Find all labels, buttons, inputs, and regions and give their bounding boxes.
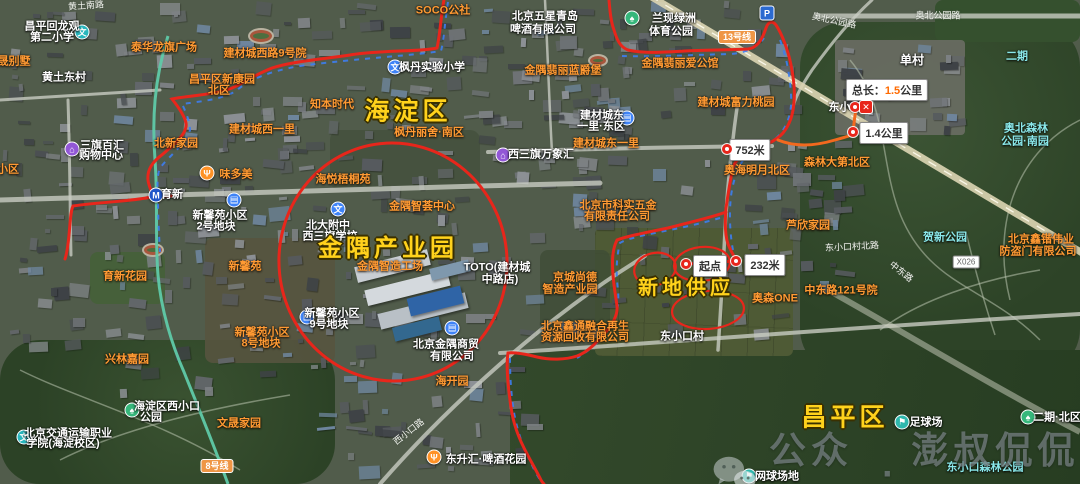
poi-label[interactable]: 金隅智荟中心 [389, 202, 455, 213]
road-label: 中东路 [888, 260, 915, 284]
distance-box: 1.4公里 [859, 122, 908, 144]
building-icon[interactable]: ▤ [227, 193, 242, 208]
poi-label[interactable]: 第二小学 [30, 33, 74, 44]
poi-label[interactable]: 建材城西路9号院 [223, 49, 306, 60]
poi-label[interactable]: 奥森ONE [752, 294, 798, 305]
district-title: 新地供应 [638, 278, 734, 298]
poi-label[interactable]: 公园 [140, 413, 162, 424]
poi-label[interactable]: 知本时代 [310, 100, 354, 111]
poi-label[interactable]: SOCO公社 [416, 6, 470, 17]
measure-text: X026 [957, 258, 976, 267]
park-icon[interactable]: ♠ [625, 11, 640, 26]
school-icon[interactable]: 文 [331, 202, 346, 217]
poi-label[interactable]: 一里·东区 [577, 122, 625, 133]
poi-label[interactable]: 奥海明月北区 [724, 166, 790, 177]
poi-label[interactable]: 建材城西一里 [229, 125, 295, 136]
poi-label[interactable]: 智造产业园 [543, 285, 598, 296]
poi-label[interactable]: 8号地块 [241, 339, 280, 350]
poi-label[interactable]: 味多美 [220, 170, 253, 181]
poi-label[interactable]: 防盗门有限公司 [1000, 247, 1077, 258]
poi-label[interactable]: 资源回收有限公司 [541, 333, 629, 344]
route-end-marker: ✕ [859, 100, 873, 114]
poi-label[interactable]: 建材城富力桃园 [698, 98, 775, 109]
labels-layer: 文文文文♠♠♠⌂⌂ΨΨM▤▤▤▤P⚑⚑晟别墅昌平回龙观第二小学黄土东村泰华龙旗广… [0, 0, 1080, 484]
poi-label[interactable]: 有限责任公司 [584, 212, 650, 223]
poi-label[interactable]: 小区 [0, 165, 19, 176]
satellite-map[interactable]: 文文文文♠♠♠⌂⌂ΨΨM▤▤▤▤P⚑⚑晟别墅昌平回龙观第二小学黄土东村泰华龙旗广… [0, 0, 1080, 484]
poi-label[interactable]: 金隅翡丽爱公馆 [642, 59, 719, 70]
poi-label[interactable]: 海开园 [436, 377, 469, 388]
poi-label[interactable]: 黄土东村 [42, 73, 86, 84]
road-label: 东小口村北路 [825, 241, 879, 253]
poi-label[interactable]: 北京金隅商贸 [413, 340, 479, 351]
sports-field-icon[interactable]: ⚑ [895, 415, 910, 430]
poi-label[interactable]: 奥北森林 [1004, 124, 1048, 135]
poi-label[interactable]: 兴林嘉园 [105, 355, 149, 366]
poi-label[interactable]: 海悦梧桐苑 [316, 175, 371, 186]
distance-box: 232米 [744, 254, 785, 276]
poi-label[interactable]: 中东路121号院 [804, 286, 877, 297]
poi-label[interactable]: 有限公司 [430, 352, 474, 363]
route-point-marker [848, 127, 858, 137]
poi-label[interactable]: 育新 [161, 190, 183, 201]
poi-label[interactable]: 文晟家园 [217, 419, 261, 430]
poi-label[interactable]: 贺新公园 [923, 233, 967, 244]
road-label: 奥北公园路 [915, 12, 960, 21]
poi-label[interactable]: 北新家园 [154, 139, 198, 150]
measure-text: 752米 [735, 145, 764, 157]
poi-label[interactable]: TOTO(建材城 [464, 263, 531, 274]
poi-label[interactable]: 二期·北区 [1033, 413, 1080, 424]
poi-label[interactable]: 泰华龙旗广场 [131, 43, 197, 54]
measure-text: 232米 [750, 260, 779, 272]
district-title: 金隅产业园 [318, 237, 458, 261]
district-title: 海淀区 [364, 100, 451, 125]
poi-label[interactable]: 足球场 [910, 418, 943, 429]
poi-label[interactable]: 金隅翡丽蓝爵堡 [525, 66, 602, 77]
metro-line-badge: 13号线 [718, 30, 756, 44]
poi-label[interactable]: 北区 [208, 86, 230, 97]
poi-label[interactable]: 9号地块 [309, 320, 348, 331]
poi-label[interactable]: 东小口村 [660, 332, 704, 343]
poi-label[interactable]: 建材城东一里 [573, 139, 639, 150]
poi-label[interactable]: 枫丹丽舍·南区 [394, 128, 464, 139]
road-label: 奥北公园路 [811, 12, 857, 30]
road-label: 黄土南路 [68, 0, 105, 11]
poi-label[interactable]: 枫丹实验小学 [399, 63, 465, 74]
poi-label[interactable]: 公园·南园 [1001, 137, 1049, 148]
poi-label[interactable]: 东升汇·啤酒花园 [446, 455, 527, 466]
poi-label[interactable]: 中路店) [482, 275, 519, 286]
poi-label[interactable]: 北京五星青岛 [512, 12, 578, 23]
poi-label[interactable]: 网球场地 [755, 472, 799, 483]
poi-label[interactable]: 森林大第北区 [804, 158, 870, 169]
poi-label[interactable]: 金隅智造工场 [357, 262, 423, 273]
metro-line-badge: 8号线 [200, 459, 233, 473]
poi-label[interactable]: 新馨苑 [229, 262, 262, 273]
parking-icon[interactable]: P [760, 6, 775, 21]
district-title: 昌平区 [801, 406, 888, 431]
poi-label[interactable]: 购物中心 [79, 151, 123, 162]
poi-label[interactable]: 晟别墅 [0, 57, 31, 68]
building-icon[interactable]: ▤ [445, 321, 460, 336]
poi-label[interactable]: 西三旗万象汇 [508, 150, 574, 161]
distance-box: 总长：1.5公里 [846, 79, 928, 101]
poi-label[interactable]: 北京鑫锴伟业 [1008, 235, 1074, 246]
route-point-marker [731, 256, 741, 266]
road-label: 西小口路 [392, 417, 426, 446]
poi-label[interactable]: 学院(海淀校区) [26, 439, 99, 450]
poi-label[interactable]: 育新花园 [103, 272, 147, 283]
measure-text: 1.4公里 [865, 128, 902, 140]
poi-label[interactable]: 兰现绿洲 [652, 14, 696, 25]
measure-text: 1.5 [885, 85, 900, 97]
poi-label[interactable]: 芦欣家园 [786, 221, 830, 232]
poi-label[interactable]: 体育公园 [649, 27, 693, 38]
distance-box: 起点 [693, 255, 727, 277]
measure-text: 起点 [699, 261, 721, 273]
route-point-marker [722, 144, 732, 154]
poi-label[interactable]: 啤酒有限公司 [510, 25, 576, 36]
restaurant-icon[interactable]: Ψ [427, 450, 442, 465]
poi-label[interactable]: 单村 [900, 54, 924, 66]
distance-box: 752米 [729, 139, 770, 161]
measure-text: 总长： [852, 85, 885, 97]
poi-label[interactable]: 京城尚德 [553, 273, 597, 284]
restaurant-icon[interactable]: Ψ [200, 166, 215, 181]
poi-label[interactable]: 东小口森林公园 [947, 463, 1024, 474]
shopping-mall-icon[interactable]: ⌂ [65, 142, 80, 157]
poi-label[interactable]: 2号地块 [196, 222, 235, 233]
poi-label[interactable]: 二期 [1006, 52, 1028, 63]
route-point-marker [681, 259, 691, 269]
measure-text: 公里 [900, 85, 922, 97]
road-number-box: X026 [953, 256, 980, 269]
